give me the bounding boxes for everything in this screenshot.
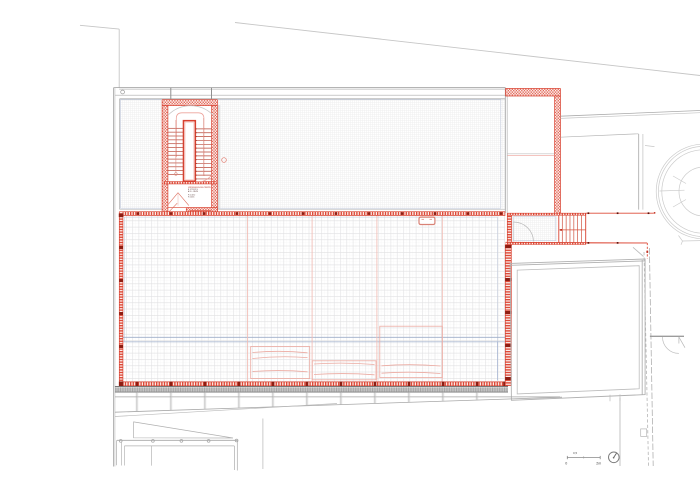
svg-text:H 2.45m: H 2.45m <box>188 197 195 199</box>
svg-text:A 20 - 185/26: A 20 - 185/26 <box>188 190 198 193</box>
svg-text:0: 0 <box>565 461 567 465</box>
svg-text:0,5: 0,5 <box>573 451 578 455</box>
svg-text:2m: 2m <box>596 461 601 465</box>
